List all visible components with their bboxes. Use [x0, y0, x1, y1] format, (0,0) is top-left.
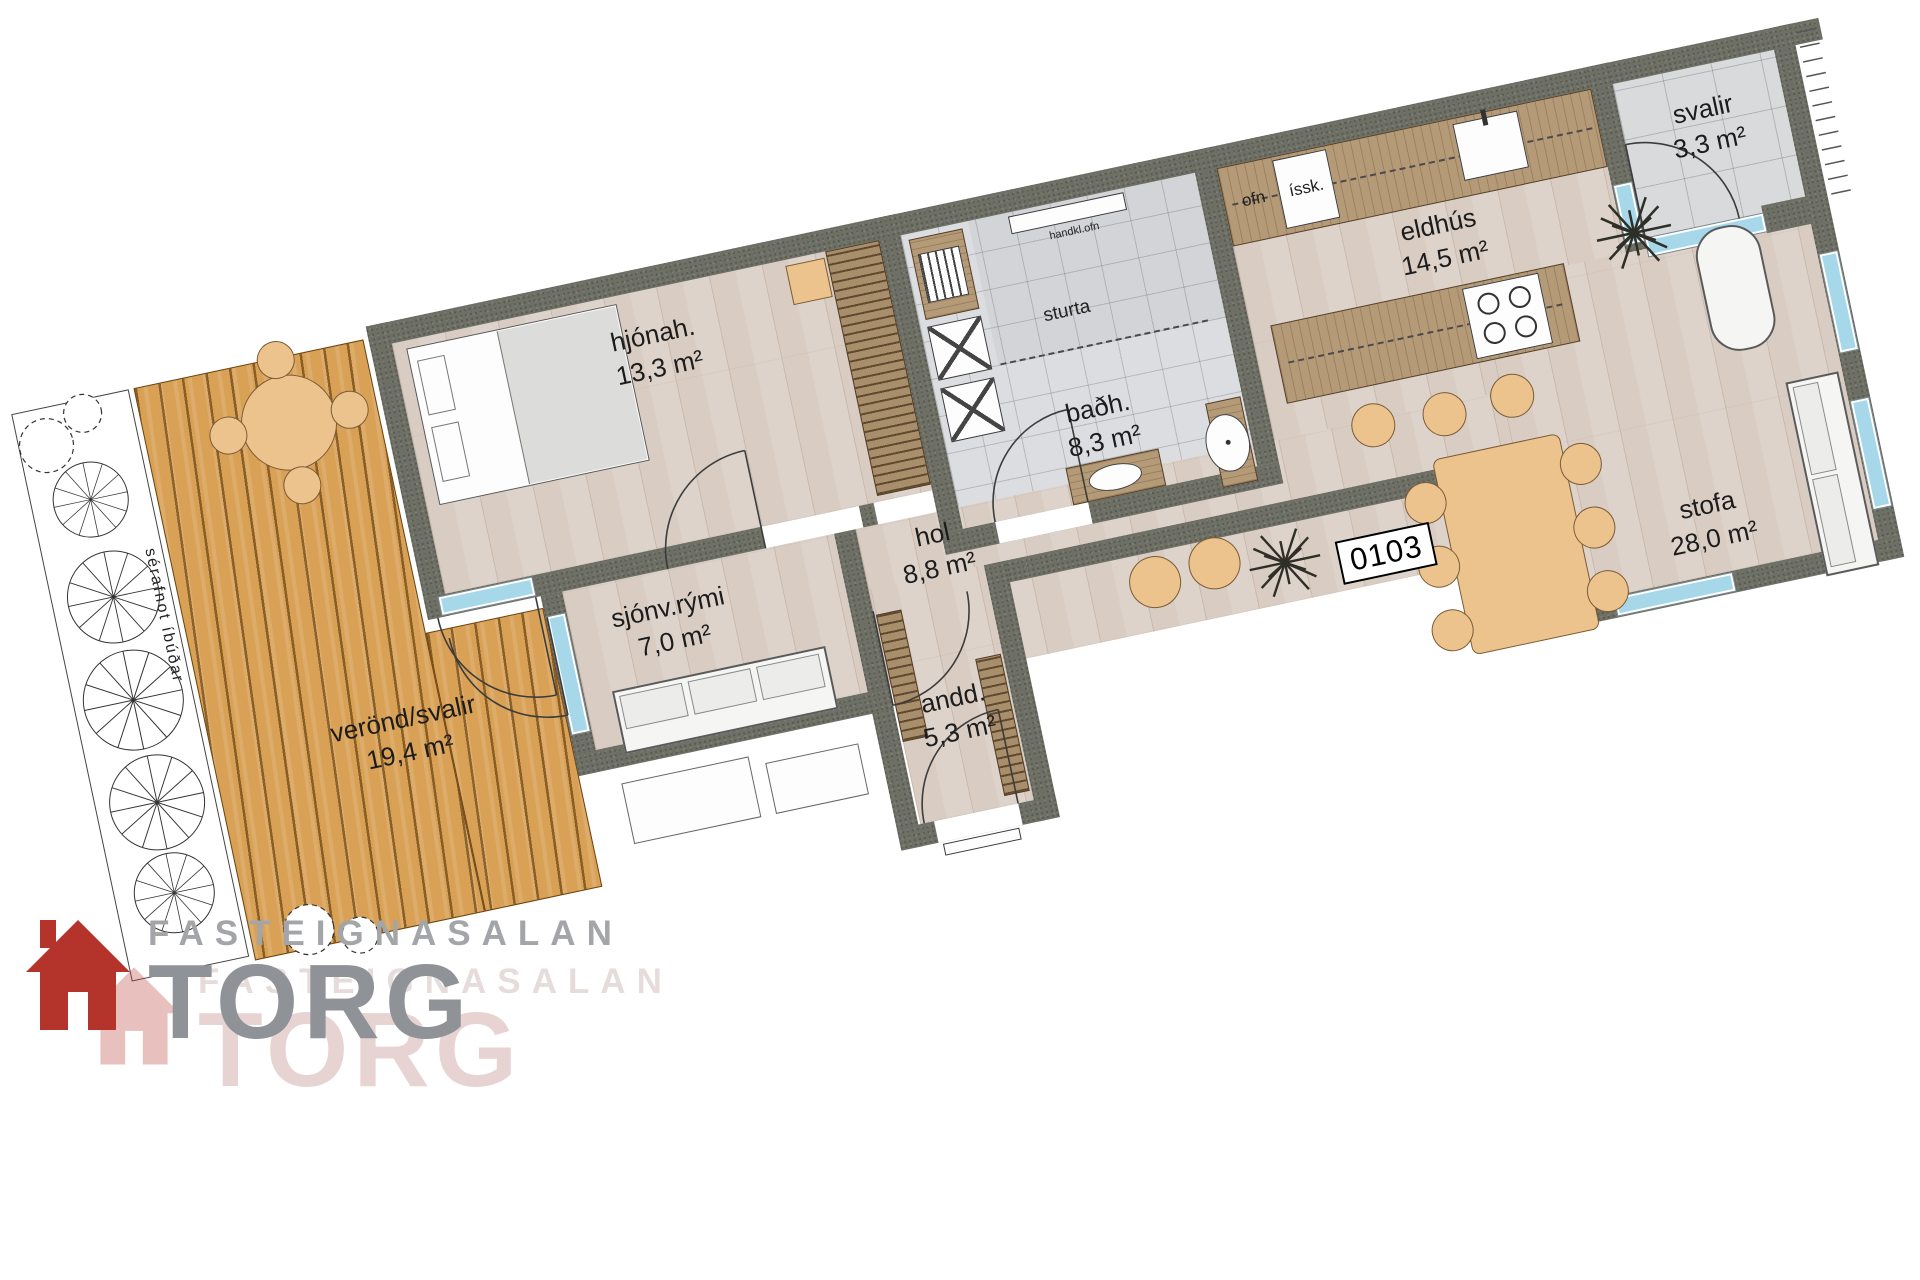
- dryer: [940, 377, 1005, 442]
- agency-logo: FASTEIGNASALAN TORG: [26, 914, 623, 1049]
- nightstand: [785, 258, 832, 305]
- logo-name-text: TORG: [148, 956, 623, 1049]
- house-icon: [26, 914, 130, 1034]
- outside-pad: [621, 756, 761, 844]
- outside-pad: [765, 743, 869, 814]
- floor-plan-canvas: hjónah.13,3 m² baðh.8,3 m² eldhús14,5 m²…: [0, 0, 1920, 1280]
- washer: [927, 315, 992, 380]
